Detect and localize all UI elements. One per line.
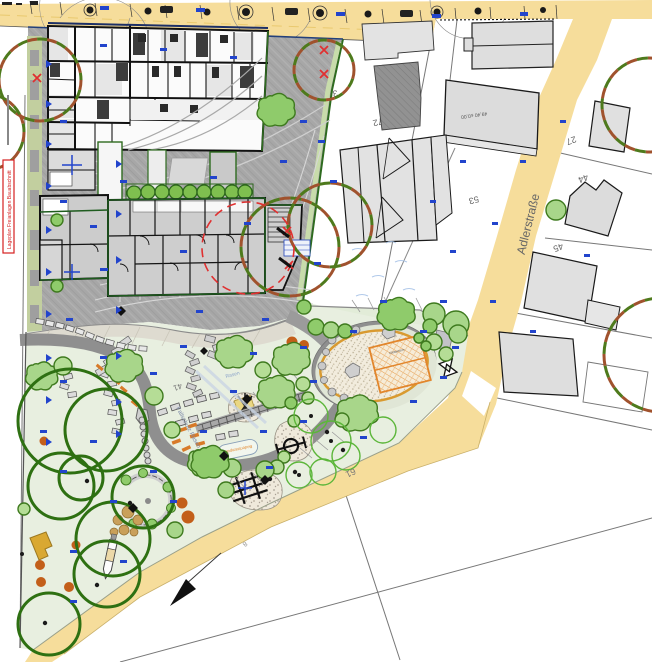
svg-text:Lageplan Freianlagen Bauabschn: Lageplan Freianlagen Bauabschnitt — [7, 170, 13, 249]
